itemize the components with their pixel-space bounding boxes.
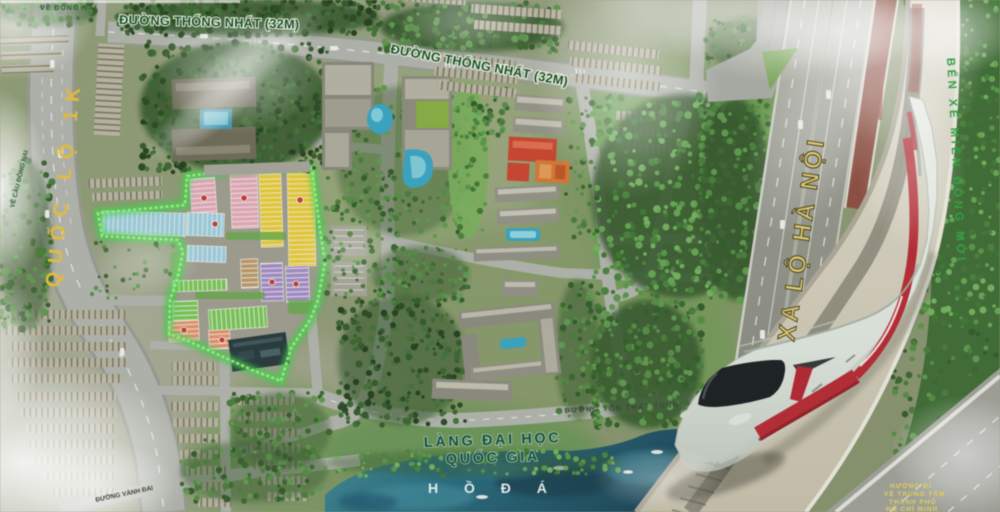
svg-text:HƯỚNG ĐI: HƯỚNG ĐI [890, 481, 932, 490]
svg-text:H Ồ Đ Á: H Ồ Đ Á [428, 479, 558, 496]
